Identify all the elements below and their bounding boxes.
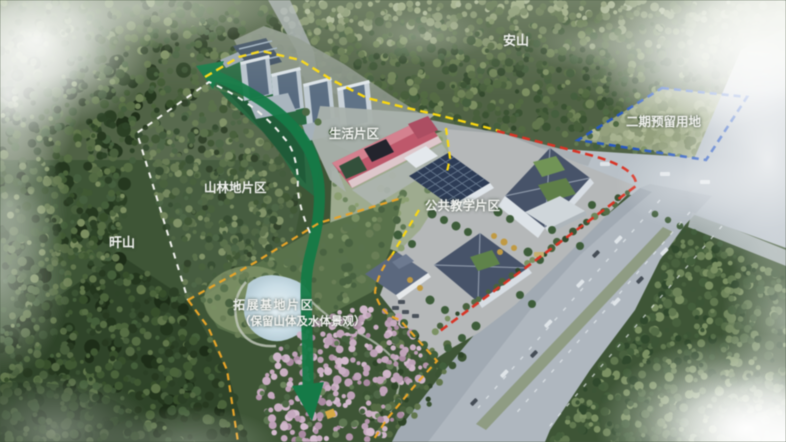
svg-text:生活片区: 生活片区 (329, 126, 380, 141)
svg-text:（保留山体及水体景观）: （保留山体及水体景观） (239, 314, 366, 328)
svg-text:二期预留用地: 二期预留用地 (626, 114, 702, 129)
svg-text:公共教学片区: 公共教学片区 (425, 198, 501, 213)
svg-text:旰山: 旰山 (109, 235, 135, 250)
svg-text:拓展基地片区: 拓展基地片区 (233, 297, 314, 312)
svg-text:安山: 安山 (503, 33, 529, 48)
svg-text:山林地片区: 山林地片区 (204, 180, 267, 195)
